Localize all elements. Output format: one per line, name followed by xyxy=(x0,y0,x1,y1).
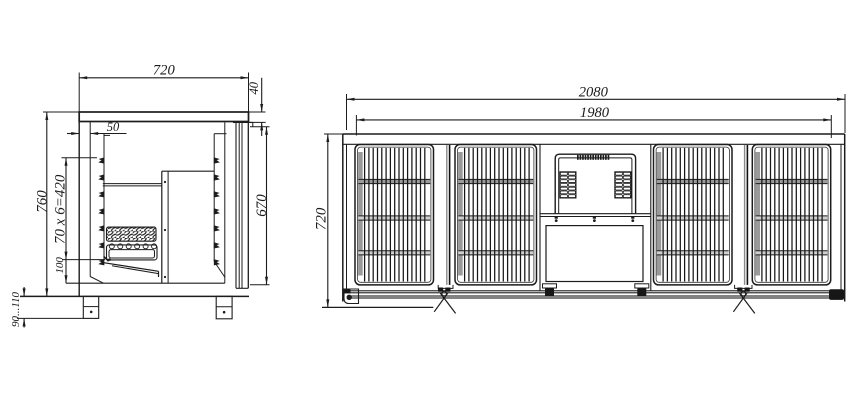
svg-text:100: 100 xyxy=(54,257,66,274)
svg-text:70 x 6=420: 70 x 6=420 xyxy=(53,174,69,244)
svg-text:760: 760 xyxy=(35,190,51,213)
svg-text:2080: 2080 xyxy=(579,85,609,101)
svg-text:720: 720 xyxy=(313,207,329,230)
svg-text:670: 670 xyxy=(254,194,270,217)
svg-text:1980: 1980 xyxy=(580,105,610,121)
svg-text:40: 40 xyxy=(247,81,261,94)
svg-text:720: 720 xyxy=(153,63,176,79)
